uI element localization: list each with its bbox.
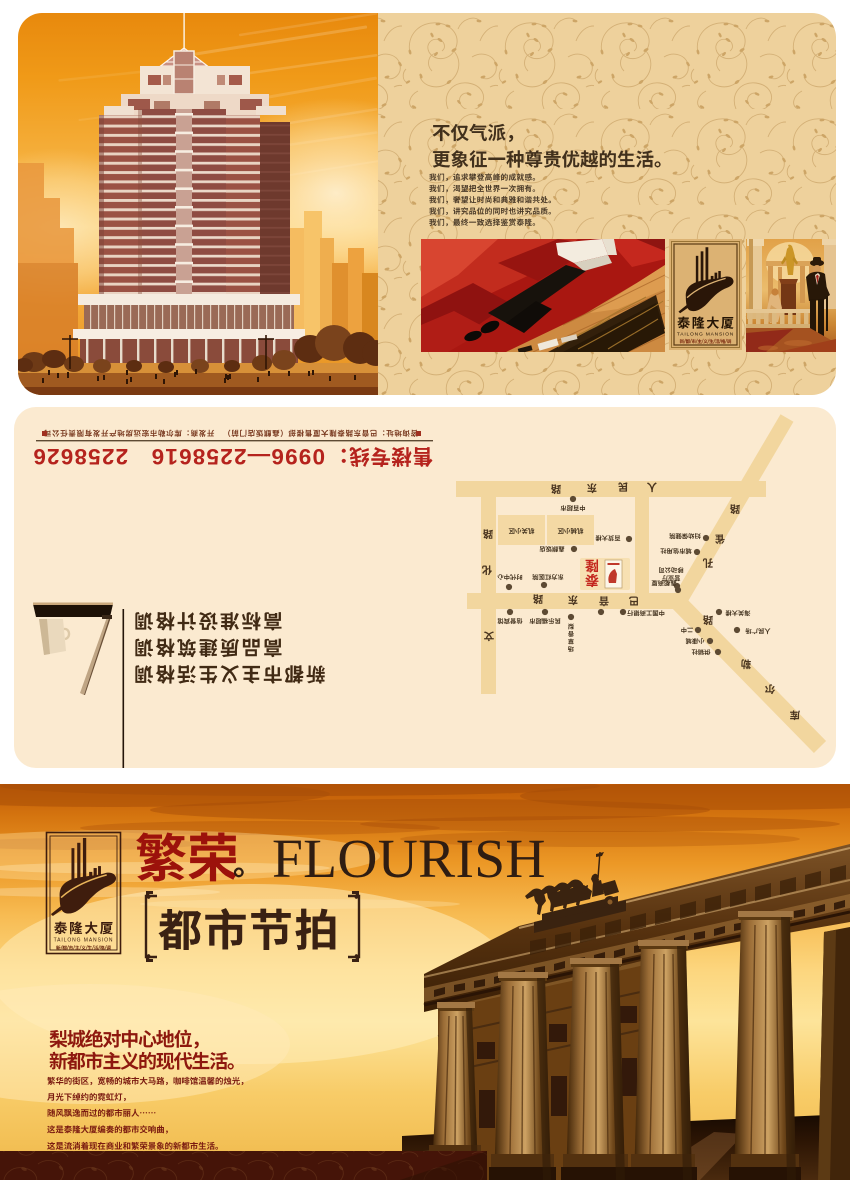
svg-text:FLOURISH: FLOURISH (272, 829, 546, 890)
svg-text:TAILONG MANSION: TAILONG MANSION (677, 332, 734, 338)
svg-text:0996—2258616 2258626: 0996—2258616 2258626 (32, 444, 325, 469)
svg-text:TAILONG MANSION: TAILONG MANSION (54, 938, 114, 944)
